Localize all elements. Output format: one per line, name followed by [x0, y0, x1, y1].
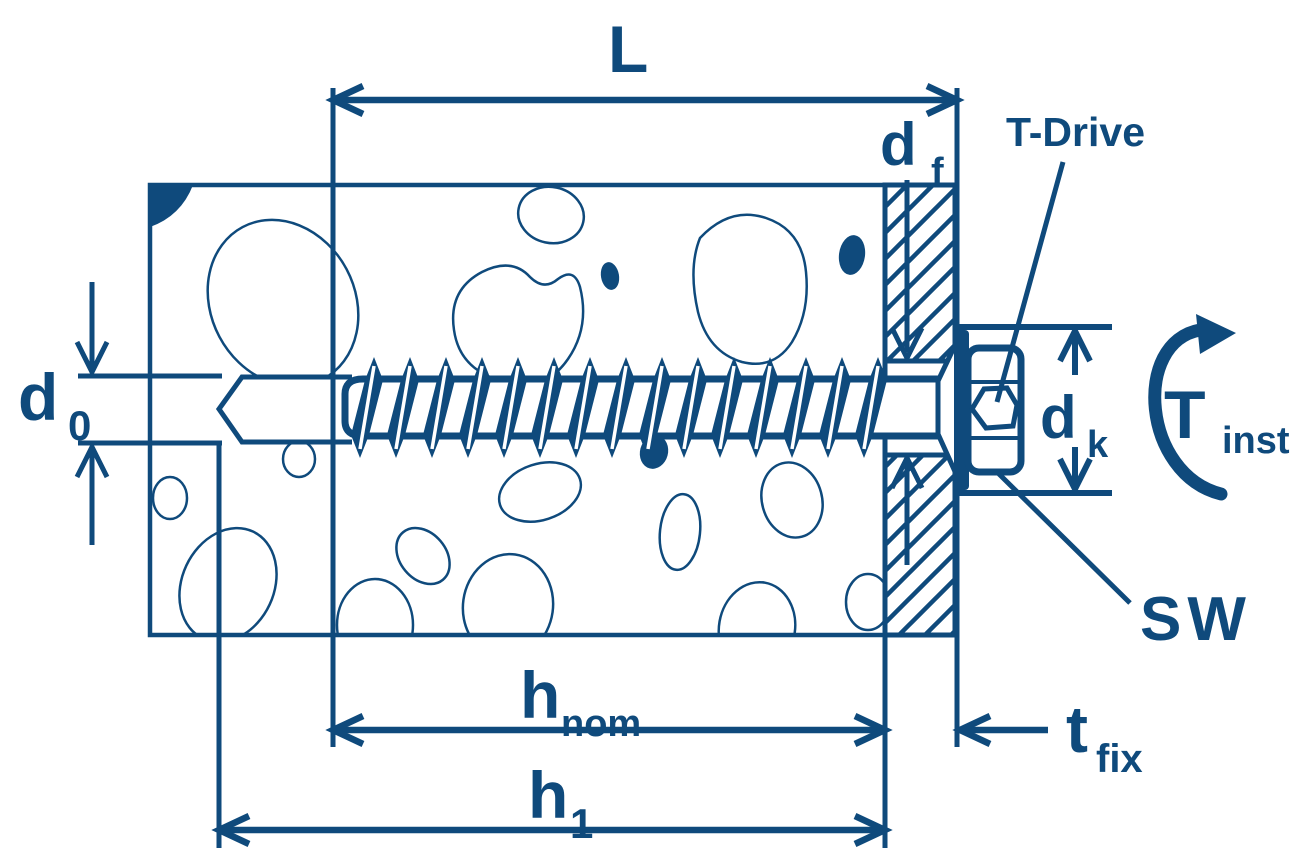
leader-t-drive	[997, 162, 1063, 402]
aggregate-blob	[337, 579, 413, 671]
aggregate-blob	[153, 477, 187, 519]
label-hnom-sub: nom	[561, 703, 641, 745]
label-d0-main: d	[18, 360, 58, 434]
aggregate-blob	[656, 492, 704, 572]
label-tfix-sub: fix	[1096, 737, 1143, 781]
label-dk-sub: k	[1087, 424, 1109, 466]
aggregate-dot	[836, 233, 867, 276]
aggregate-blob	[513, 181, 589, 249]
label-tinst-sub: inst	[1222, 420, 1290, 462]
aggregate-blob	[385, 517, 460, 594]
aggregate-blob	[693, 215, 806, 364]
dimension-L	[333, 86, 957, 114]
label-df-main: d	[880, 111, 917, 178]
t-drive-recess	[972, 388, 1017, 428]
aggregate-dot	[599, 261, 622, 292]
label-t-drive: T-Drive	[1006, 109, 1145, 155]
aggregate-blob	[456, 548, 560, 664]
label-df-sub: f	[931, 151, 944, 193]
label-sw: SW	[1140, 585, 1252, 654]
aggregate-blob	[491, 452, 588, 531]
label-h1-main: h	[528, 758, 568, 832]
anchor-installation-diagram: L d f T-Drive d 0 d k T inst SW h nom h …	[0, 0, 1310, 851]
diagram-canvas: L d f T-Drive d 0 d k T inst SW h nom h …	[0, 0, 1310, 851]
label-tfix-main: t	[1066, 692, 1088, 766]
aggregate-blob	[753, 456, 831, 545]
screw-thread	[351, 357, 887, 458]
label-L: L	[608, 12, 648, 86]
concrete-corner-wedge	[150, 185, 193, 227]
dimension-tfix	[960, 716, 1048, 744]
label-dk-main: d	[1040, 384, 1077, 451]
aggregate-blob	[712, 576, 803, 680]
rotation-arrowhead	[1196, 314, 1236, 354]
label-tinst-main: T	[1164, 377, 1206, 453]
label-d0-sub: 0	[68, 402, 91, 449]
aggregate-blob	[283, 441, 315, 477]
label-h1-sub: 1	[570, 800, 593, 847]
label-hnom-main: h	[520, 658, 560, 732]
